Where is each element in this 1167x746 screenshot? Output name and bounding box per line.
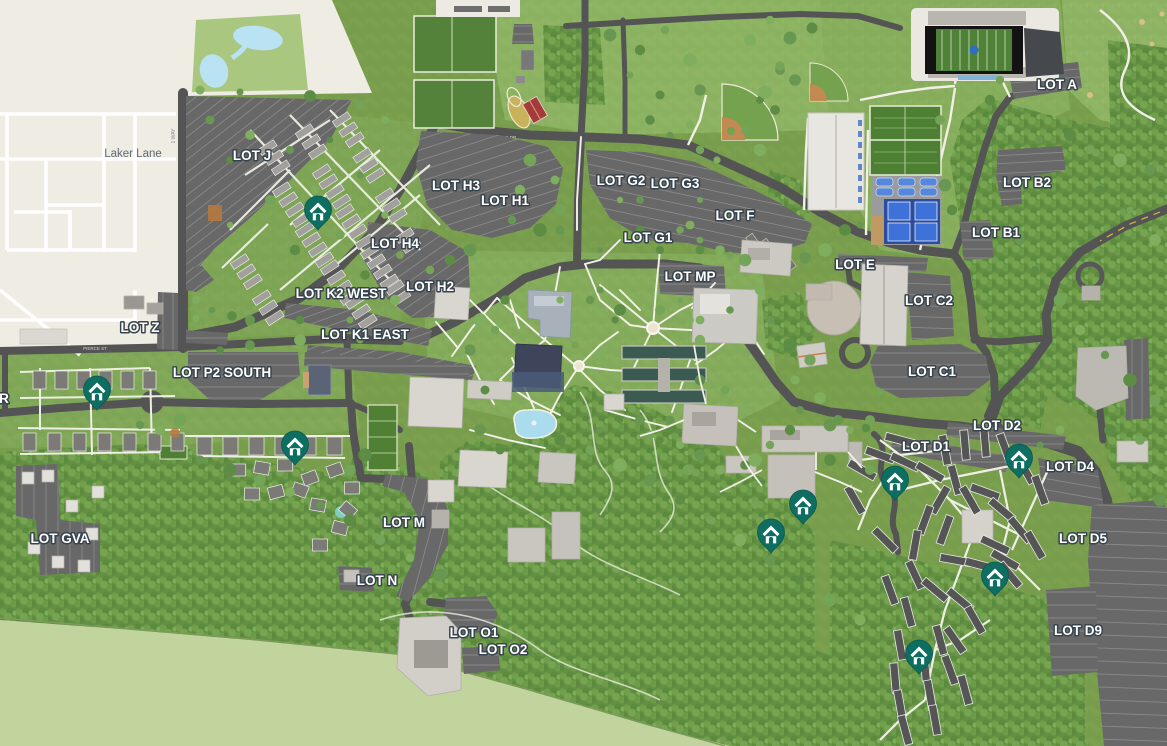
svg-text:LOT C2: LOT C2 — [905, 293, 953, 308]
svg-text:LOT J: LOT J — [233, 148, 271, 163]
svg-text:LOT G2: LOT G2 — [597, 173, 646, 188]
svg-text:LOT A: LOT A — [1037, 77, 1077, 92]
svg-text:Laker Lane: Laker Lane — [104, 148, 162, 160]
svg-text:LOT M: LOT M — [383, 515, 425, 530]
svg-text:LOT D2: LOT D2 — [973, 418, 1021, 433]
svg-text:LOT D4: LOT D4 — [1046, 459, 1094, 474]
svg-text:LOT H3: LOT H3 — [432, 178, 480, 193]
svg-text:LOT B1: LOT B1 — [972, 225, 1020, 240]
svg-text:LOT GVA: LOT GVA — [31, 531, 90, 546]
svg-text:LOT C1: LOT C1 — [908, 364, 956, 379]
svg-text:LOT K2 WEST: LOT K2 WEST — [296, 286, 388, 301]
svg-text:LOT G3: LOT G3 — [651, 176, 700, 191]
svg-text:LOT Z: LOT Z — [121, 320, 160, 335]
svg-text:LOT G1: LOT G1 — [624, 230, 673, 245]
svg-text:LOT N: LOT N — [357, 573, 398, 588]
svg-text:LOT D9: LOT D9 — [1054, 623, 1102, 638]
svg-text:LOT H2: LOT H2 — [406, 279, 454, 294]
svg-text:LOT O1: LOT O1 — [450, 625, 499, 640]
svg-text:LOT E: LOT E — [835, 257, 875, 272]
svg-text:LOT B2: LOT B2 — [1003, 175, 1051, 190]
svg-text:LOT D1: LOT D1 — [902, 439, 950, 454]
svg-text:LOT H4: LOT H4 — [371, 236, 419, 251]
svg-text:LOT F: LOT F — [716, 208, 755, 223]
svg-text:LOT P2 SOUTH: LOT P2 SOUTH — [173, 365, 271, 380]
svg-text:LOT H1: LOT H1 — [481, 193, 529, 208]
svg-text:LOT K1 EAST: LOT K1 EAST — [321, 327, 410, 342]
svg-text:R: R — [0, 391, 9, 406]
svg-text:LOT MP: LOT MP — [665, 269, 716, 284]
svg-text:LOT O2: LOT O2 — [479, 642, 528, 657]
svg-text:PIERCE ST: PIERCE ST — [83, 346, 107, 351]
svg-text:1 WAY: 1 WAY — [171, 128, 177, 144]
svg-text:LOT D5: LOT D5 — [1059, 531, 1107, 546]
